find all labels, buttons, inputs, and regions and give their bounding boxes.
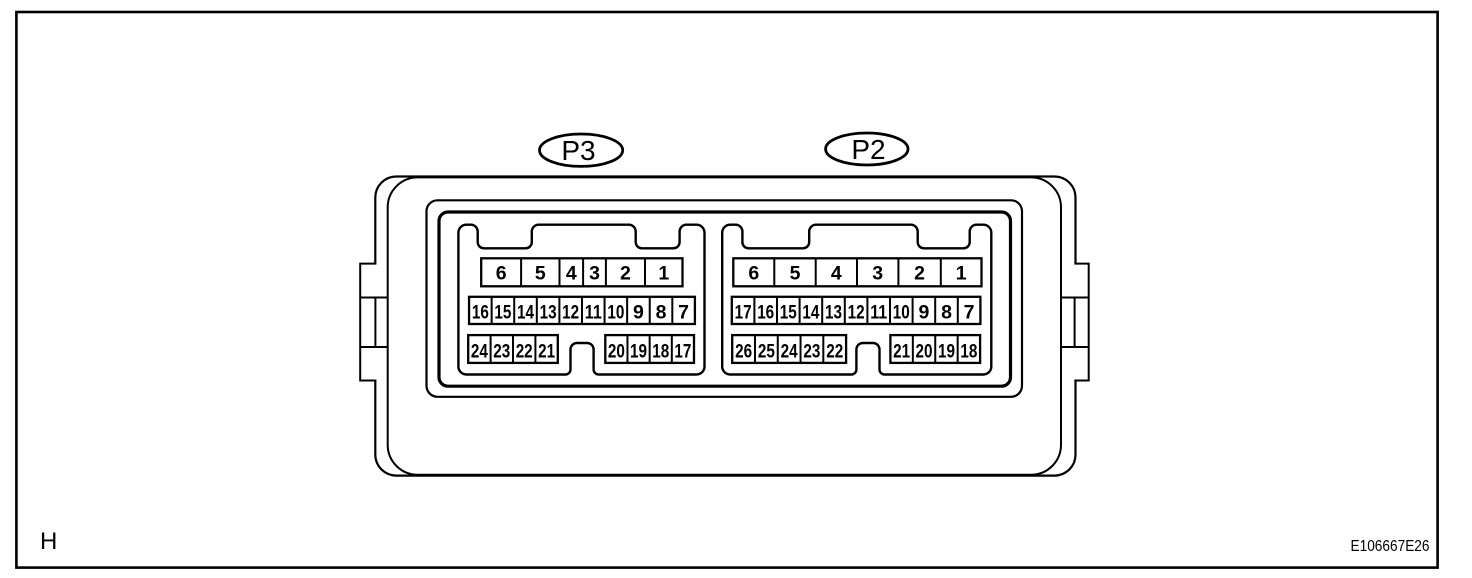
svg-text:12: 12 xyxy=(848,302,865,324)
svg-text:17: 17 xyxy=(735,302,752,324)
svg-text:P3: P3 xyxy=(561,135,595,166)
svg-text:9: 9 xyxy=(918,302,929,324)
svg-text:21: 21 xyxy=(893,341,910,363)
svg-text:16: 16 xyxy=(757,302,774,324)
svg-text:17: 17 xyxy=(674,341,691,363)
svg-text:14: 14 xyxy=(802,302,819,324)
svg-text:16: 16 xyxy=(472,302,489,324)
svg-text:8: 8 xyxy=(941,302,952,324)
svg-text:14: 14 xyxy=(517,302,534,324)
svg-text:9: 9 xyxy=(633,302,644,324)
svg-text:7: 7 xyxy=(678,302,689,324)
svg-text:13: 13 xyxy=(540,302,557,324)
svg-text:22: 22 xyxy=(826,341,843,363)
svg-text:6: 6 xyxy=(496,263,507,285)
svg-text:24: 24 xyxy=(781,341,798,363)
svg-text:4: 4 xyxy=(831,263,842,285)
svg-text:4: 4 xyxy=(566,263,577,285)
svg-text:8: 8 xyxy=(656,302,667,324)
svg-text:11: 11 xyxy=(585,302,602,324)
svg-text:12: 12 xyxy=(562,302,579,324)
svg-text:6: 6 xyxy=(748,263,759,285)
svg-text:2: 2 xyxy=(914,263,925,285)
svg-text:24: 24 xyxy=(471,341,488,363)
svg-text:5: 5 xyxy=(535,263,546,285)
svg-text:18: 18 xyxy=(652,341,669,363)
svg-text:25: 25 xyxy=(758,341,775,363)
svg-text:10: 10 xyxy=(607,302,624,324)
svg-text:18: 18 xyxy=(960,341,977,363)
svg-text:3: 3 xyxy=(872,263,883,285)
svg-text:19: 19 xyxy=(938,341,955,363)
svg-text:21: 21 xyxy=(538,341,555,363)
svg-text:10: 10 xyxy=(893,302,910,324)
svg-text:H: H xyxy=(40,528,57,555)
svg-text:22: 22 xyxy=(516,341,533,363)
svg-text:20: 20 xyxy=(916,341,933,363)
svg-text:2: 2 xyxy=(620,263,631,285)
svg-text:3: 3 xyxy=(589,263,600,285)
svg-text:23: 23 xyxy=(803,341,820,363)
svg-text:E106667E26: E106667E26 xyxy=(1351,538,1430,555)
svg-text:26: 26 xyxy=(735,341,752,363)
svg-text:15: 15 xyxy=(494,302,511,324)
svg-text:13: 13 xyxy=(825,302,842,324)
svg-text:11: 11 xyxy=(870,302,887,324)
svg-text:15: 15 xyxy=(780,302,797,324)
svg-text:1: 1 xyxy=(658,263,669,285)
svg-text:P2: P2 xyxy=(851,134,885,165)
svg-text:20: 20 xyxy=(608,341,625,363)
svg-text:7: 7 xyxy=(964,302,975,324)
svg-text:5: 5 xyxy=(790,263,801,285)
svg-text:19: 19 xyxy=(630,341,647,363)
svg-text:1: 1 xyxy=(956,263,967,285)
svg-text:23: 23 xyxy=(493,341,510,363)
